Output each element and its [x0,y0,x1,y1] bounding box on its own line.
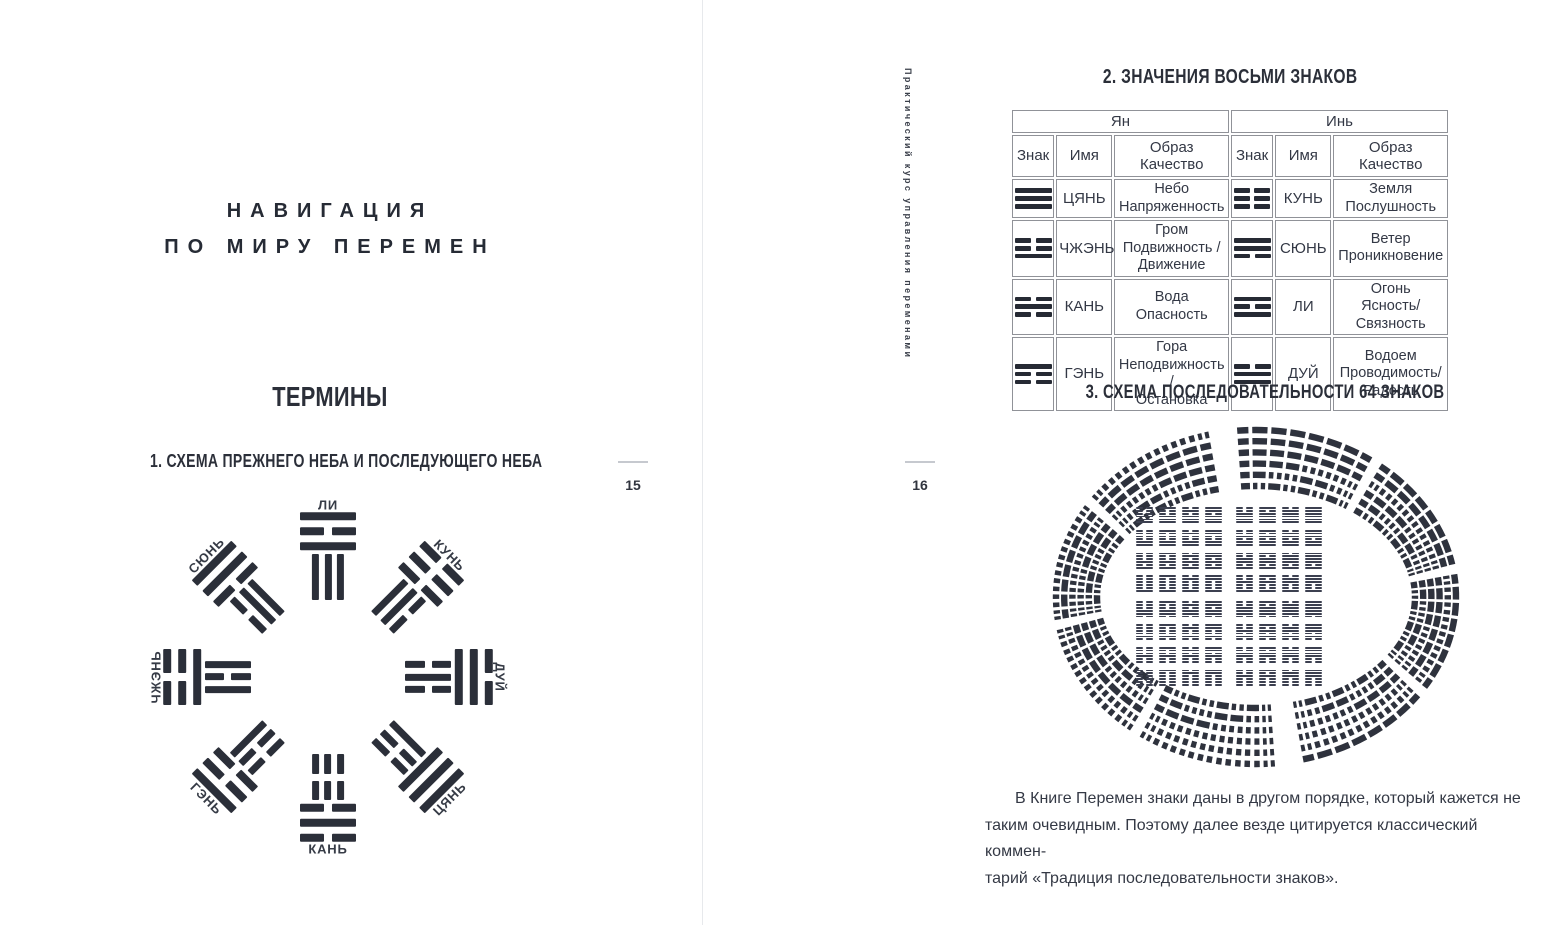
hexagram-cell [1159,575,1176,591]
hexagram-sector [1225,707,1243,764]
trigram-line [1315,616,1322,618]
hexagram-cell [1136,530,1153,546]
hexagram [1136,507,1153,523]
trigram-line [1305,653,1322,655]
trigram-line [1259,561,1276,563]
hexagram-cell [1305,575,1322,591]
trigram-line [325,781,332,801]
trigram-line [1169,607,1176,609]
trigram-line [1282,564,1289,566]
hexagram [1259,553,1276,569]
trigram-line [1259,607,1276,609]
hexagram [1259,670,1276,686]
hexagram-cell [1182,530,1199,546]
trigram-line [1246,624,1253,626]
trigram-line [470,649,478,705]
trigram-line [1269,650,1276,652]
trigram-line [1254,204,1270,209]
trigram-line [1305,541,1322,543]
trigram-line [1305,604,1322,606]
hexagram-cell [1282,530,1299,546]
trigram-line [1259,587,1266,589]
trigram-line [1215,653,1222,655]
trigram-line [1182,650,1199,652]
hexagram [1136,647,1153,663]
trigram-line [1205,521,1222,523]
trigram-line [1182,544,1199,546]
trigram-line [1282,655,1299,657]
trigram-line [1236,538,1243,540]
trigram-line [1146,575,1153,577]
trigram-line [1315,633,1322,635]
trigram-line [1282,590,1299,592]
hexagram-cell [1136,647,1153,663]
hexagram-cell [1136,670,1153,686]
trigram-line [1136,567,1153,569]
trigram-line [1036,372,1052,377]
trigram-line [1146,533,1153,535]
trigram-line [1292,624,1299,626]
trigram-line [1205,601,1222,603]
hexagram [1259,530,1276,546]
trigram-line [1282,533,1299,535]
trigram-line [1259,507,1276,509]
trigram-line [1205,607,1212,609]
trigram-line [1159,658,1166,660]
trigram-line [1305,536,1322,538]
trigram-line [1255,304,1271,309]
trigram-line [1234,246,1271,251]
hexagram [1136,670,1153,686]
trigram-line [1182,558,1189,560]
trigram-line [1236,555,1243,557]
trigram-line [1282,638,1289,640]
trigram-line [1234,364,1250,369]
trigram-line [1192,553,1199,555]
trigram-line [1182,616,1189,618]
trigram-line [1269,633,1276,635]
trigram-line [1315,638,1322,640]
trigram-line [1282,516,1299,518]
trigram-line [1159,627,1166,629]
chapter-title-line2: ПО МИРУ ПЕРЕМЕН [95,229,565,265]
bagua-inner [312,754,344,800]
hexagram [1282,507,1299,523]
trigram-line [1305,564,1312,566]
trigram-line [1246,510,1253,512]
trigram-line [1036,238,1052,243]
trigram-line [1036,297,1052,302]
trigram-line [1182,521,1199,523]
trigram-line [1305,578,1322,580]
sign-meaning-cell: Земля Послушность [1333,179,1448,218]
trigram-line [300,804,324,812]
trigram-line [1182,584,1189,586]
trigram-line [1205,538,1212,540]
trigram-line [1146,638,1153,640]
trigram-line [1182,655,1199,657]
trigram-line [312,781,319,801]
trigram-line [1259,661,1266,663]
trigram-line [1236,630,1253,632]
trigram-line [1159,555,1166,557]
trigram-line [1146,653,1153,655]
hexagram-cell [1205,624,1222,640]
trigram-line [1246,627,1253,629]
trigram-line [1182,567,1199,569]
hexagram [1236,553,1253,569]
trigram-line [1159,616,1166,618]
trigram-line [1036,246,1052,251]
trigram-line [1169,555,1176,557]
trigram-line [1236,604,1243,606]
trigram-line [1136,581,1143,583]
trigram-line [1136,638,1143,640]
trigram-line [1136,681,1143,683]
sign-glyph-cell [1012,179,1054,218]
trigram-ли [1234,297,1271,317]
trigram-цянь [1015,188,1052,208]
trigram-line [1315,587,1322,589]
trigram-line [1282,519,1299,521]
hexagram [1282,530,1299,546]
trigram-line [1292,538,1299,540]
sign-meaning-cell: Гром Подвижность / Движение [1114,220,1229,277]
trigram-line [312,554,319,600]
hexagram [1236,647,1253,663]
trigram-line [1259,627,1266,629]
trigram-line [300,512,356,520]
trigram-line [1282,633,1289,635]
hexagram-cell [1159,624,1176,640]
trigram-line [1259,575,1276,577]
trigram-line [1236,581,1253,583]
trigram-line [1205,633,1212,635]
trigram-line [1305,658,1312,660]
trigram-line [1305,681,1312,683]
trigram-line [1205,616,1212,618]
hexagram [1282,601,1299,617]
trigram-line [1305,530,1322,532]
trigram-line [1146,604,1153,606]
trigram-line [163,649,171,673]
hexagram [1182,575,1199,591]
trigram-line [1246,633,1253,635]
hexagram [1259,647,1276,663]
page-divider [702,0,703,925]
hexagram-cell [1236,507,1253,523]
hexagram-sector [1237,430,1250,486]
hexagram [1282,670,1299,686]
hexagram-cell [1282,670,1299,686]
trigram-line [1259,584,1266,586]
outer-trigram [300,512,356,550]
inner-trigram [312,554,344,600]
trigram-line [1259,658,1266,660]
trigram-line [1282,575,1289,577]
trigram-line [1205,530,1222,532]
trigram-line [1315,681,1322,683]
trigram-line [1169,581,1176,583]
trigram-line [1236,530,1243,532]
outer-trigram [163,649,201,705]
trigram-line [1159,647,1176,649]
hexagram [1205,507,1222,523]
trigram-line [1269,510,1276,512]
trigram-line [1136,604,1143,606]
hexagram-sector [1415,587,1456,600]
trigram-line [1205,610,1222,612]
trigram-line [1159,538,1166,540]
trigram-line [1205,519,1222,521]
trigram-line [1259,513,1276,515]
hexagram-cell [1182,507,1199,523]
hexagram-sector [1252,430,1267,486]
trigram-line [1205,541,1222,543]
trigram-line [1182,633,1189,635]
trigram-line [1146,536,1153,538]
trigram-line [1269,627,1276,629]
trigram-line [1305,558,1322,560]
trigram-line [1182,647,1189,649]
trigram-line [1282,678,1289,680]
trigram-line [1236,536,1253,538]
trigram-line [1305,627,1322,629]
trigram-line [1305,624,1322,626]
bagua-label: ЧЖЭНЬ [149,651,164,704]
trigram-line [1236,587,1243,589]
trigram-line [1292,530,1299,532]
trigram-line [1282,636,1299,638]
trigram-line [1182,681,1189,683]
trigram-line [1205,604,1222,606]
trigram-line [1015,380,1031,385]
hexagram [1305,601,1322,617]
trigram-line [1136,647,1143,649]
trigram-line [1192,653,1199,655]
trigram-line [1236,627,1243,629]
hexagram [1136,601,1153,617]
trigram-line [1146,510,1153,512]
trigram-line [1246,578,1253,580]
trigram-line [1315,564,1322,566]
trigram-line [1192,507,1199,509]
trigram-line [1269,587,1276,589]
hexagram [1305,507,1322,523]
outer-trigram [300,804,356,842]
trigram-line [1305,650,1322,652]
trigram-line [1136,555,1143,557]
trigram-line [1182,530,1189,532]
hexagram-cell [1182,575,1199,591]
trigram-line [1282,530,1289,532]
trigram-line [1236,584,1243,586]
trigram-line [1305,636,1322,638]
trigram-line [1159,630,1166,632]
trigram-line [1254,196,1270,201]
trigram-line [1305,630,1322,632]
trigram-line [337,781,344,801]
trigram-line [1269,661,1276,663]
trigram-line [1159,564,1166,566]
trigram-line [1305,584,1312,586]
trigram-line [1282,604,1299,606]
hexagram-cell [1236,575,1253,591]
hexagram [1159,670,1176,686]
trigram-line [1182,590,1199,592]
trigram-line [1146,513,1153,515]
trigram-line [1136,675,1143,677]
sign-meaning-cell: Небо Напряженность [1114,179,1229,218]
hexagram-cell [1159,530,1176,546]
trigram-line [1205,578,1222,580]
hexagram-cell [1236,553,1253,569]
trigram-line [1182,672,1199,674]
trigram-line [1269,533,1276,535]
trigram-line [1159,655,1176,657]
trigram-line [1136,633,1143,635]
trigram-line [1305,581,1322,583]
trigram-line [1136,655,1153,657]
trigram-line [1159,678,1166,680]
trigram-line [1282,536,1299,538]
trigram-line [1269,681,1276,683]
trigram-кунь [1234,188,1270,208]
trigram-line [1259,672,1266,674]
trigram-line [1169,564,1176,566]
trigram-line [1215,536,1222,538]
trigram-line [1136,653,1143,655]
trigram-line [1269,638,1276,640]
trigram-line [1182,630,1189,632]
hexagram-cell [1259,601,1276,617]
inner-trigram [205,661,251,693]
trigram-line [205,674,225,681]
trigram-line [1159,541,1176,543]
hexagram [1159,601,1176,617]
trigram-line [1159,578,1166,580]
trigram-line [1169,587,1176,589]
hexagram [1259,575,1276,591]
trigram-line [1205,584,1212,586]
trigram-line [1259,564,1266,566]
trigram-line [1246,672,1253,674]
trigram-line [1236,578,1243,580]
left-page-rule [618,461,648,463]
trigram-line [1292,633,1299,635]
trigram-line [1236,564,1243,566]
trigram-line [1215,607,1222,609]
hexagram-cell [1259,647,1276,663]
hexagram-cell [1305,624,1322,640]
trigram-line [1305,616,1312,618]
trigram-line [1236,670,1243,672]
trigram-line [1292,681,1299,683]
table-row: КАНЬВода ОпасностьЛИОгонь Ясность/Связно… [1012,279,1448,336]
trigram-line [1282,521,1299,523]
trigram-line [1246,553,1253,555]
trigram-line [1182,541,1199,543]
trigram-line [1169,638,1176,640]
trigram-line [1205,678,1212,680]
trigram-line [1282,561,1299,563]
trigram-line [1146,558,1153,560]
hexagram [1305,624,1322,640]
trigram-line [1182,636,1199,638]
trigram-line [1146,587,1153,589]
trigram-line [1205,672,1222,674]
hexagram-cell [1236,647,1253,663]
trigram-line [205,686,251,693]
trigram-line [300,542,356,550]
trigram-line [1215,675,1222,677]
trigram-line [332,834,356,842]
trigram-line [1282,541,1299,543]
hexagram-cell [1182,670,1199,686]
trigram-line [1315,584,1322,586]
trigram-line [1136,519,1153,521]
trigram-line [1282,544,1299,546]
trigram-line [1182,555,1199,557]
trigram-line [405,661,425,668]
trigram-line [337,554,344,600]
trigram-line [1236,516,1253,518]
trigram-line [1136,521,1153,523]
trigram-line [1305,610,1322,612]
trigram-line [1182,675,1189,677]
trigram-line [1269,555,1276,557]
trigram-line [1182,519,1199,521]
hexagram-cell [1205,575,1222,591]
trigram-line [1305,567,1322,569]
trigram-line [1169,678,1176,680]
trigram-line [1182,604,1199,606]
trigram-line [1159,507,1176,509]
trigram-line [1236,650,1243,652]
trigram-line [1259,630,1276,632]
trigram-line [332,804,356,812]
hexagram-cell [1236,670,1253,686]
trigram-line [1259,655,1276,657]
hexagram [1182,601,1199,617]
trigram-line [1136,578,1143,580]
trigram-line [1236,678,1243,680]
trigram-line [1182,624,1189,626]
hexagram [1236,507,1253,523]
trigram-line [1192,536,1199,538]
group-header-yan: Ян [1012,110,1229,133]
trigram-line [1159,587,1166,589]
trigram-line [1192,558,1199,560]
trigram-line [1182,578,1199,580]
col-header-meaning: Образ Качество [1333,135,1448,177]
trigram-line [1205,516,1222,518]
trigram-line [1282,653,1299,655]
hexagram [1305,530,1322,546]
trigram-line [1236,510,1243,512]
trigram-line [1259,519,1276,521]
trigram-line [1169,653,1176,655]
hexagram [1205,575,1222,591]
trigram-line [1246,681,1253,683]
bagua-inner [405,661,451,693]
right-page-rule [905,461,935,463]
trigram-line [1292,661,1299,663]
trigram-line [1282,630,1299,632]
trigram-line [1259,616,1266,618]
trigram-line [1215,630,1222,632]
trigram-line [325,554,332,600]
